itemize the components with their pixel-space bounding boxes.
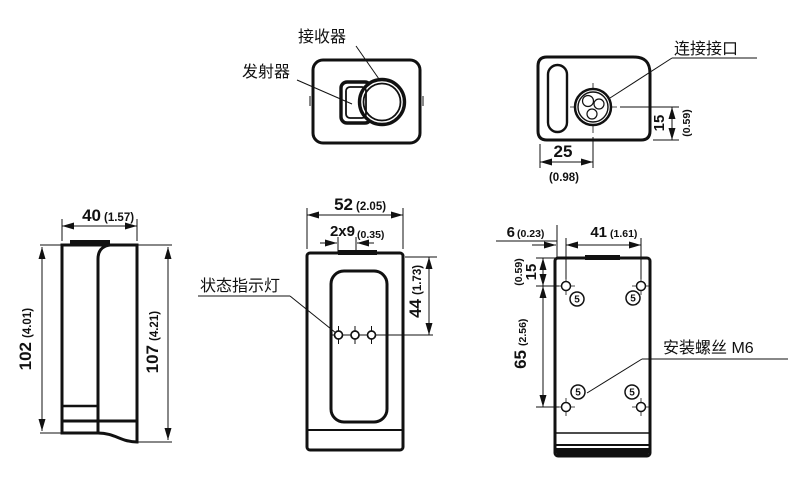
dim52-value: 52 (334, 195, 353, 214)
receiver-label: 接收器 (298, 28, 346, 46)
view-top: 接收器 发射器 (242, 28, 423, 143)
dim15s-value: 15 (651, 115, 668, 132)
dim41-inches: (1.61) (610, 228, 637, 240)
dim107-inches: (4.21) (149, 311, 161, 341)
dim65-inches: (2.56) (517, 319, 529, 346)
marker5-br: 5 (629, 388, 635, 399)
dim65-value: 65 (511, 350, 530, 369)
engineering-drawing-sheet: 接收器 发射器 连接接口 25 (0.98) 15 (0.59) (0, 0, 800, 491)
dim2x9-value: 2x9 (330, 223, 355, 240)
back-base-bar (556, 448, 649, 456)
dim15b-value: 15 (523, 264, 540, 281)
marker5-tl: 5 (574, 295, 580, 306)
dim107-value: 107 (143, 345, 162, 373)
dim15b-inches: (0.59) (513, 258, 525, 285)
dim15s-inches: (0.59) (681, 109, 693, 136)
dim102-inches: (4.01) (22, 308, 34, 338)
connector-label: 连接接口 (674, 40, 738, 58)
drawing-svg: 接收器 发射器 连接接口 25 (0.98) 15 (0.59) (0, 0, 800, 491)
dim25-inches: (0.98) (549, 172, 579, 184)
led2 (351, 331, 359, 339)
dim2x9-inches: (0.35) (357, 229, 384, 241)
dim52-inches: (2.05) (356, 201, 386, 213)
front-view-body (307, 253, 403, 450)
view-connector-side: 连接接口 25 (0.98) 15 (0.59) (538, 40, 757, 184)
led3 (368, 331, 376, 339)
dim102-value: 102 (16, 342, 35, 370)
dim6-value: 6 (507, 224, 515, 241)
marker5-bl: 5 (575, 388, 581, 399)
dim25-value: 25 (554, 142, 573, 161)
dim40-value: 40 (82, 206, 101, 225)
marker5-tr: 5 (630, 294, 636, 305)
dim6-inches: (0.23) (517, 228, 544, 240)
dim44-value: 44 (406, 298, 425, 317)
back-view-top-tab (585, 255, 620, 260)
left-view-top-tab (70, 240, 110, 245)
view-front: 状态指示灯 52 (2.05) 2x9 (0.35) 44 (1.73) (198, 195, 437, 450)
transmitter-label: 发射器 (242, 63, 290, 81)
view-left-side: 40 (1.57) 102 (4.01) 107 (4.21) (16, 206, 172, 442)
dim41-value: 41 (590, 224, 607, 241)
mounting-screw-label: 安装螺丝 M6 (663, 339, 754, 357)
connector-outer-circle (575, 89, 611, 125)
dim44-inches: (1.73) (412, 265, 424, 295)
front-view-top-tab (338, 250, 377, 255)
status-led-label: 状态指示灯 (200, 277, 280, 295)
dim40-inches: (1.57) (104, 212, 134, 224)
view-back: 5 5 5 5 安装螺丝 M6 6 (0.23) 41 (1.61) 15 (0… (496, 224, 788, 456)
